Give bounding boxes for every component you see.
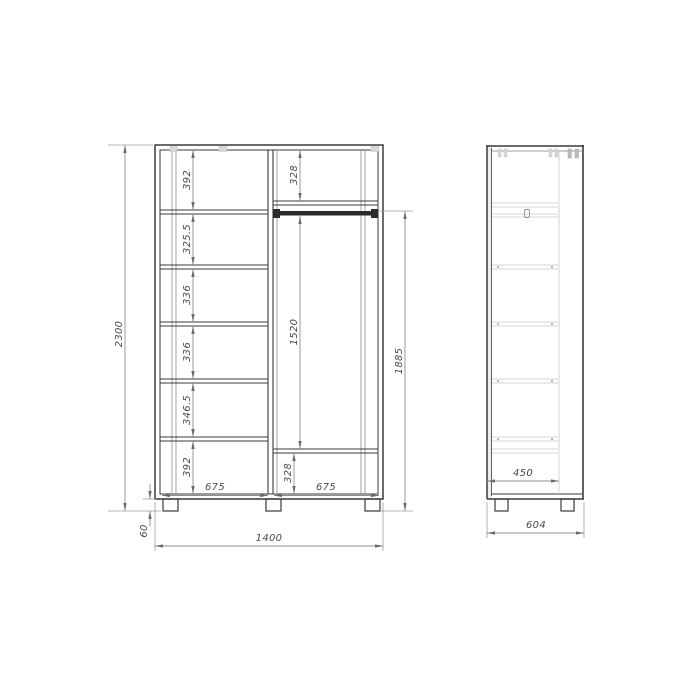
shelf-pin (497, 266, 499, 268)
dim-text-bottom-left-width: 675 (205, 482, 225, 493)
mount-tab (498, 149, 501, 157)
side-view (487, 145, 584, 511)
front-view (155, 145, 383, 511)
wardrobe-dimension-drawing: 2300 392 325.5 336 336 346.5 392 328 152… (0, 0, 700, 700)
dim-text-inner-depth: 450 (513, 468, 533, 479)
dim-text-shelf-5: 346.5 (182, 395, 193, 425)
mount-tab (555, 149, 558, 157)
shelf-pin (551, 380, 553, 382)
connector-mark (170, 147, 177, 152)
shelf-pin (551, 266, 553, 268)
hanging-rod (279, 211, 373, 216)
dim-text-hang-zone: 1885 (394, 348, 405, 375)
leg (365, 499, 380, 511)
side-dimensions: 450 604 (487, 468, 584, 538)
dim-text-overall-depth: 604 (526, 520, 546, 531)
connector-mark (371, 147, 379, 152)
dim-text-bottom-right-width: 675 (316, 482, 336, 493)
dim-text-shelf-2: 325.5 (182, 224, 193, 254)
shelf-pin (497, 380, 499, 382)
dim-text-overall-width: 1400 (256, 533, 283, 544)
leg (163, 499, 178, 511)
shelf-pin (497, 438, 499, 440)
leg (266, 499, 281, 511)
side-shelf-lines (492, 203, 558, 453)
drawing-page: 2300 392 325.5 336 336 346.5 392 328 152… (0, 0, 700, 700)
mount-tab (504, 149, 507, 157)
leg (495, 499, 508, 511)
dim-text-shelf-4: 336 (182, 342, 193, 362)
mount-tab (575, 149, 579, 158)
shelf-pin (551, 438, 553, 440)
dim-text-shelf-1: 392 (182, 170, 193, 190)
connector-mark (219, 147, 227, 152)
mount-tab (568, 149, 572, 158)
leg (561, 499, 574, 511)
dim-text-overall-height: 2300 (114, 321, 125, 348)
mount-tab (549, 149, 552, 157)
rod-side-fitting (525, 210, 530, 218)
shelf-pin (497, 323, 499, 325)
dim-text-right-middle: 1520 (289, 319, 300, 346)
front-dimensions: 2300 392 325.5 336 336 346.5 392 328 152… (108, 145, 413, 551)
rod-bracket (273, 209, 280, 218)
rod-bracket (371, 209, 378, 218)
dim-text-shelf-3: 336 (182, 285, 193, 305)
dim-text-shelf-6: 392 (182, 457, 193, 477)
dim-text-right-top: 328 (289, 165, 300, 185)
dim-text-leg-height: 60 (139, 524, 150, 537)
shelf-pin (551, 323, 553, 325)
dim-text-right-bottom: 328 (283, 463, 294, 483)
